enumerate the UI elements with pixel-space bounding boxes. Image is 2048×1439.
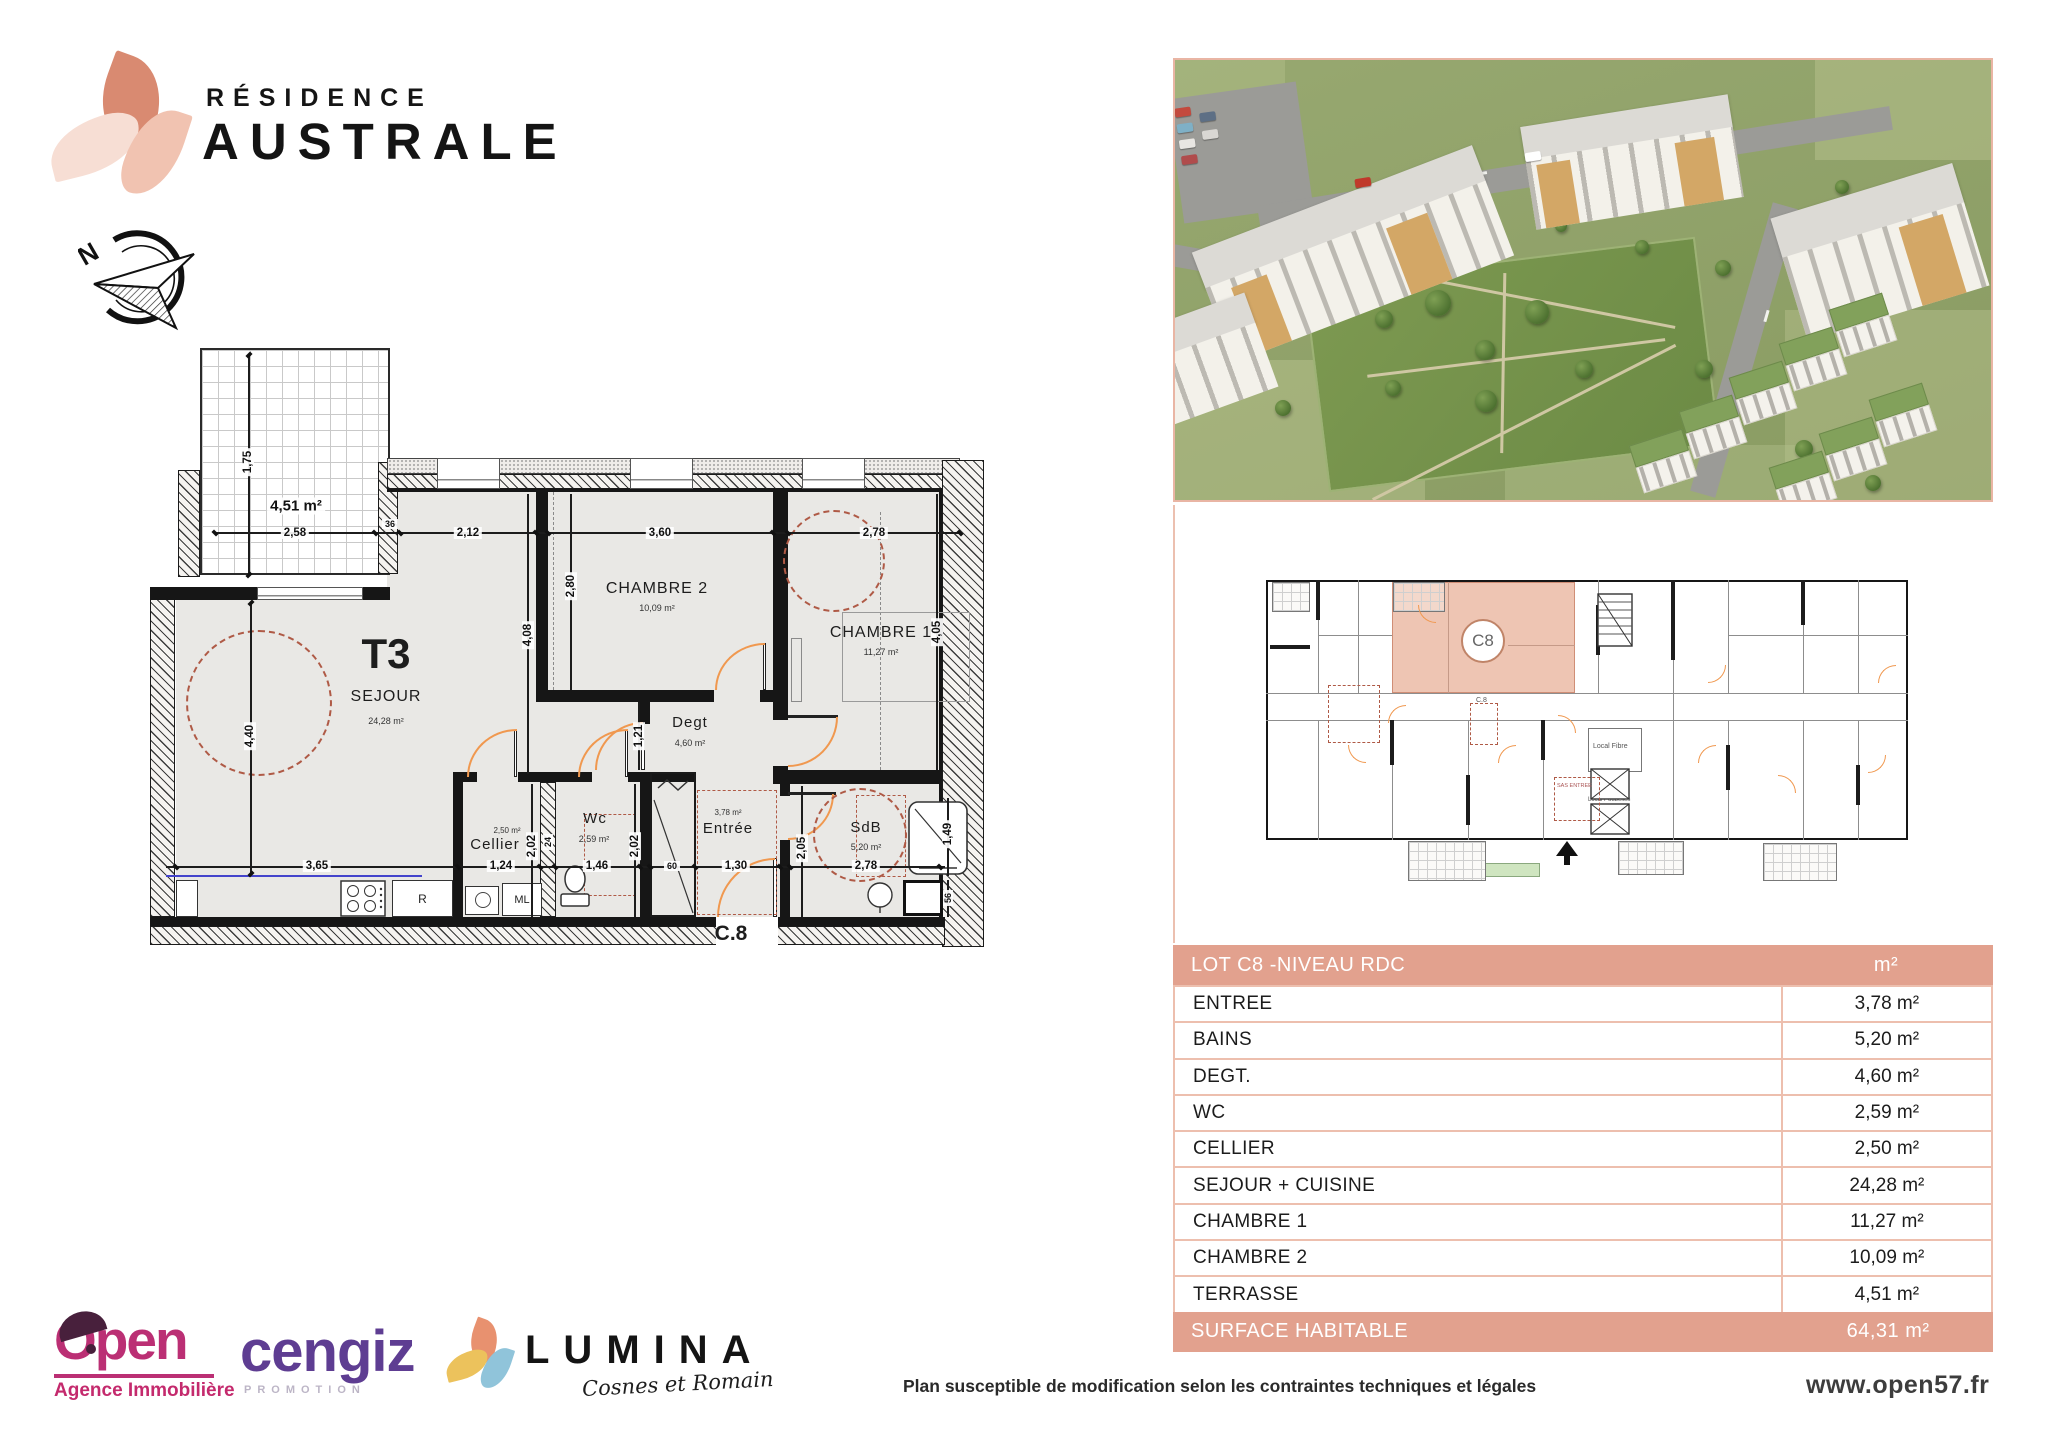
surface-habitable-value: 64,31 m² <box>1783 1320 1993 1343</box>
row-value: 4,60 m² <box>1781 1060 1991 1094</box>
logo-lumina: LUMINA Cosnes et Romain <box>440 1310 840 1430</box>
row-label: WC <box>1175 1096 1781 1130</box>
dim-label: 1,30 <box>722 860 750 872</box>
compass-north-label: N <box>78 236 104 271</box>
table-footer: SURFACE HABITABLE 64,31 m² <box>1173 1312 1993 1352</box>
dim-label: 2,12 <box>454 527 482 539</box>
unit-type-label: T3 <box>361 630 410 678</box>
local-fibre-room <box>1588 728 1642 772</box>
room-area: 24,28 m² <box>368 716 404 726</box>
compass-icon: N <box>78 222 218 334</box>
brand-logo: RÉSIDENCE AUSTRALE <box>0 0 620 220</box>
terrace <box>200 348 390 575</box>
lumina-logo-text: LUMINA <box>525 1328 765 1373</box>
open-logo-subtitle: Agence Immobilière <box>54 1380 235 1402</box>
fridge-label: R <box>418 892 427 906</box>
row-label: DEGT. <box>1175 1060 1781 1094</box>
dim-label: 60 <box>664 861 680 871</box>
table-row: CHAMBRE 210,09 m² <box>1173 1239 1993 1275</box>
green-terrace <box>1480 863 1540 877</box>
closet-symbol <box>650 772 696 917</box>
unit-badge-label: C8 <box>1472 631 1494 651</box>
dim-label: 4,40 <box>244 722 256 750</box>
row-label: CHAMBRE 2 <box>1175 1241 1781 1275</box>
table-row: ENTREE3,78 m² <box>1173 985 1993 1021</box>
row-value: 11,27 m² <box>1781 1205 1991 1239</box>
cengiz-logo-text: cengiz <box>240 1318 415 1385</box>
local-fibre-label: Local Fibre <box>1593 743 1628 750</box>
dim-label: 24 <box>543 834 553 850</box>
row-value: 2,50 m² <box>1781 1132 1991 1166</box>
logo-open: Open Agence Immobilière <box>0 1300 240 1420</box>
table-row: BAINS5,20 m² <box>1173 1021 1993 1057</box>
room-name: CHAMBRE 1 <box>830 624 932 642</box>
row-label: CHAMBRE 1 <box>1175 1205 1781 1239</box>
room-name: Entrée <box>703 820 753 837</box>
washer-label: ML <box>514 894 529 906</box>
entrance-arrow-icon <box>1556 841 1578 856</box>
room-name: CHAMBRE 2 <box>606 580 708 598</box>
room-area: 4,60 m² <box>675 738 706 748</box>
table-row: CELLIER2,50 m² <box>1173 1130 1993 1166</box>
row-value: 3,78 m² <box>1781 987 1991 1021</box>
logo-cengiz: cengiz PROMOTION <box>240 1310 440 1420</box>
row-label: CELLIER <box>1175 1132 1781 1166</box>
lot-label: C.8 <box>715 922 748 946</box>
dim-label: 1,75 <box>242 448 254 476</box>
room-area: 10,09 m² <box>639 603 675 613</box>
dim-label: 2,80 <box>565 572 577 600</box>
page: RÉSIDENCE AUSTRALE N 4,51 m² <box>0 0 2048 1439</box>
floor-plan: 4,51 m² <box>150 340 995 985</box>
room-name: SdB <box>850 819 881 836</box>
building-plan: C8 C.8 Local Fibre Local Poubelles SAS E… <box>1258 545 1948 950</box>
dim-label: 1,24 <box>487 860 515 872</box>
washing-machine: ML <box>502 883 542 916</box>
table-header: LOT C8 -NIVEAU RDC m² <box>1173 945 1993 985</box>
dim-label: 2,78 <box>860 527 888 539</box>
fridge: R <box>392 880 453 917</box>
residence-name: AUSTRALE <box>202 112 568 171</box>
open-logo-dot <box>86 1344 96 1354</box>
dim-label: 36 <box>382 519 398 529</box>
dim-label: 2,02 <box>526 832 538 860</box>
row-value: 24,28 m² <box>1781 1168 1991 1202</box>
room-name: Wc <box>583 810 607 827</box>
dim-label: 4,08 <box>522 621 534 649</box>
sas-entree-label: SAS ENTREE <box>1557 783 1592 789</box>
residence-label: RÉSIDENCE <box>206 84 433 113</box>
dim-label: 4,05 <box>931 618 943 646</box>
table-row: DEGT.4,60 m² <box>1173 1058 1993 1094</box>
room-area: 11,27 m² <box>864 647 899 657</box>
stove-icon <box>340 880 386 917</box>
row-label: TERRASSE <box>1175 1277 1781 1311</box>
surface-habitable-label: SURFACE HABITABLE <box>1173 1320 1783 1343</box>
dim-label: 2,02 <box>629 832 641 860</box>
aerial-render <box>1173 58 1993 502</box>
dim-label: 1,49 <box>942 820 954 848</box>
row-value: 2,59 m² <box>1781 1096 1991 1130</box>
dim-label: 3,60 <box>646 527 674 539</box>
stairs-icon <box>1597 593 1633 647</box>
table-title: LOT C8 -NIVEAU RDC <box>1173 954 1405 977</box>
sink-icon <box>863 880 897 914</box>
dim-label: 2,05 <box>796 834 808 862</box>
room-area: 5,20 m² <box>851 842 882 852</box>
table-row: WC2,59 m² <box>1173 1094 1993 1130</box>
row-label: ENTREE <box>1175 987 1781 1021</box>
row-label: BAINS <box>1175 1023 1781 1057</box>
room-name: SEJOUR <box>351 688 422 706</box>
dim-label: 56 <box>943 890 953 906</box>
room-area: 2,59 m² <box>579 834 610 844</box>
areas-table: LOT C8 -NIVEAU RDC m² ENTREE3,78 m² BAIN… <box>1173 945 1993 1352</box>
room-area: 2,50 m² <box>493 826 520 835</box>
dim-label: 2,58 <box>281 527 309 539</box>
dashed-line <box>553 492 554 690</box>
sdb-cabinet <box>903 880 943 916</box>
dim-label: 3,65 <box>303 860 331 872</box>
unit-badge: C8 <box>1461 619 1505 663</box>
basin <box>465 886 499 915</box>
table-row: CHAMBRE 111,27 m² <box>1173 1203 1993 1239</box>
website-url: www.open57.fr <box>1806 1371 1989 1400</box>
disclaimer-text: Plan susceptible de modification selon l… <box>903 1376 1536 1397</box>
table-unit: m² <box>1779 954 1993 977</box>
dim-label: 2,78 <box>852 860 880 872</box>
row-label: SEJOUR + CUISINE <box>1175 1168 1781 1202</box>
cengiz-logo-subtitle: PROMOTION <box>244 1384 366 1396</box>
room-area: 3,78 m² <box>714 808 741 817</box>
row-value: 5,20 m² <box>1781 1023 1991 1057</box>
room-name: Cellier <box>470 836 520 853</box>
table-row: TERRASSE4,51 m² <box>1173 1275 1993 1311</box>
terrace-area-label: 4,51 m² <box>267 498 325 515</box>
dim-label: 1,21 <box>633 722 645 750</box>
divider <box>1173 505 1175 943</box>
row-value: 10,09 m² <box>1781 1241 1991 1275</box>
room-name: Degt <box>672 714 708 731</box>
dim-label: 1,46 <box>583 860 611 872</box>
table-row: SEJOUR + CUISINE24,28 m² <box>1173 1166 1993 1202</box>
row-value: 4,51 m² <box>1781 1277 1991 1311</box>
